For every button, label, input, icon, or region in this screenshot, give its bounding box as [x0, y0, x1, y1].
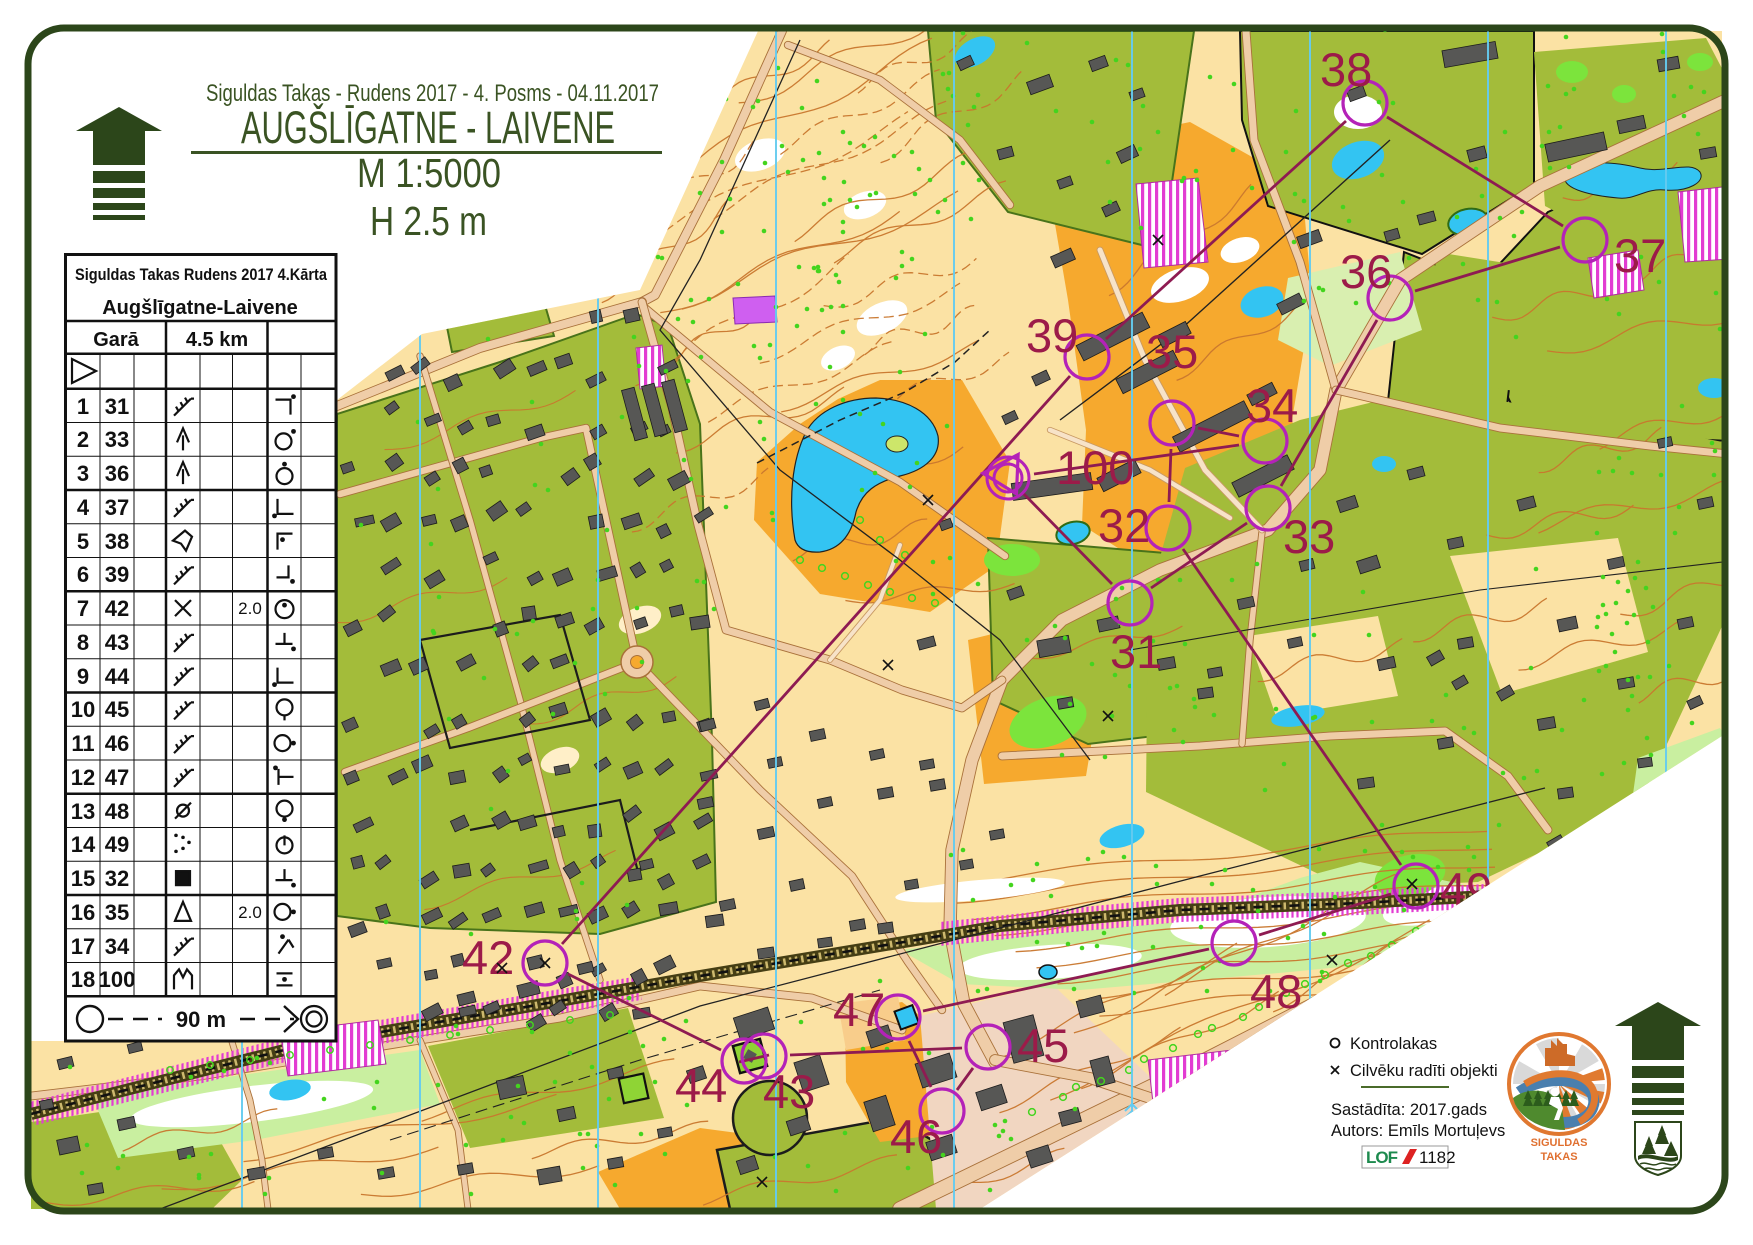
svg-text:38: 38 [105, 529, 129, 554]
svg-text:44: 44 [675, 1059, 727, 1112]
svg-text:39: 39 [1026, 309, 1078, 362]
svg-text:H 2.5 m: H 2.5 m [370, 198, 487, 244]
svg-text:48: 48 [105, 799, 129, 824]
svg-text:45: 45 [105, 697, 129, 722]
svg-text:SIGULDAS: SIGULDAS [1531, 1137, 1588, 1149]
svg-text:TAKAS: TAKAS [1540, 1151, 1577, 1163]
svg-text:33: 33 [105, 427, 129, 452]
svg-text:Garā: Garā [93, 329, 139, 351]
svg-text:Augšlīgatne-Laivene: Augšlīgatne-Laivene [102, 297, 298, 319]
svg-text:Sastādīta: 2017.gads: Sastādīta: 2017.gads [1331, 1101, 1487, 1119]
svg-text:17: 17 [71, 934, 95, 959]
svg-text:4.5 km: 4.5 km [186, 329, 248, 351]
svg-text:38: 38 [1320, 43, 1372, 96]
svg-text:10: 10 [71, 697, 95, 722]
svg-text:34: 34 [1246, 379, 1298, 432]
svg-text:37: 37 [105, 495, 129, 520]
svg-text:34: 34 [105, 934, 130, 959]
svg-text:46: 46 [890, 1110, 942, 1163]
svg-text:47: 47 [105, 765, 129, 790]
svg-text:49: 49 [105, 832, 129, 857]
svg-text:47: 47 [833, 983, 885, 1036]
svg-text:5: 5 [77, 529, 89, 554]
svg-text:43: 43 [105, 630, 129, 655]
svg-text:18: 18 [71, 967, 95, 992]
svg-text:44: 44 [105, 664, 130, 689]
svg-text:36: 36 [1340, 245, 1392, 298]
svg-text:16: 16 [71, 900, 95, 925]
svg-text:12: 12 [71, 765, 95, 790]
svg-text:M 1:5000: M 1:5000 [357, 150, 501, 196]
svg-text:11: 11 [71, 731, 94, 756]
svg-text:100: 100 [99, 967, 136, 992]
svg-text:Cilvēku radīti objekti: Cilvēku radīti objekti [1350, 1062, 1498, 1080]
svg-text:4: 4 [77, 495, 90, 520]
svg-text:35: 35 [105, 900, 129, 925]
svg-text:42: 42 [105, 596, 129, 621]
svg-text:49: 49 [1440, 863, 1492, 916]
svg-text:2: 2 [77, 427, 89, 452]
svg-text:31: 31 [1110, 625, 1162, 678]
svg-text:Siguldas Takas Rudens 2017 4.K: Siguldas Takas Rudens 2017 4.Kārta [75, 265, 327, 284]
svg-text:2.0: 2.0 [238, 903, 262, 922]
svg-text:31: 31 [105, 394, 129, 419]
svg-text:36: 36 [105, 461, 129, 486]
svg-text:15: 15 [71, 866, 95, 891]
svg-text:32: 32 [1098, 499, 1150, 552]
svg-text:48: 48 [1250, 965, 1302, 1018]
svg-text:LOF: LOF [1366, 1148, 1398, 1167]
svg-text:33: 33 [1283, 510, 1335, 563]
svg-text:45: 45 [1017, 1019, 1069, 1072]
svg-text:43: 43 [763, 1065, 815, 1118]
svg-text:Kontrolakas: Kontrolakas [1350, 1035, 1437, 1053]
svg-text:8: 8 [77, 630, 89, 655]
svg-text:13: 13 [71, 799, 95, 824]
svg-text:2.0: 2.0 [238, 599, 262, 618]
svg-text:100: 100 [1056, 441, 1134, 494]
svg-text:42: 42 [462, 931, 514, 984]
svg-text:1182: 1182 [1419, 1148, 1456, 1167]
svg-text:Autors: Emīls Mortuļevs: Autors: Emīls Mortuļevs [1331, 1122, 1505, 1140]
svg-text:90 m: 90 m [176, 1007, 226, 1032]
svg-text:35: 35 [1146, 325, 1198, 378]
svg-text:3: 3 [77, 461, 89, 486]
svg-text:7: 7 [77, 596, 89, 621]
svg-text:14: 14 [71, 832, 96, 857]
svg-text:AUGŠLĪGATNE - LAIVENE: AUGŠLĪGATNE - LAIVENE [241, 102, 615, 153]
svg-text:32: 32 [105, 866, 129, 891]
svg-text:37: 37 [1614, 229, 1666, 282]
svg-text:1: 1 [77, 394, 89, 419]
svg-text:9: 9 [77, 664, 89, 689]
svg-text:6: 6 [77, 562, 89, 587]
svg-text:39: 39 [105, 562, 129, 587]
svg-text:46: 46 [105, 731, 129, 756]
